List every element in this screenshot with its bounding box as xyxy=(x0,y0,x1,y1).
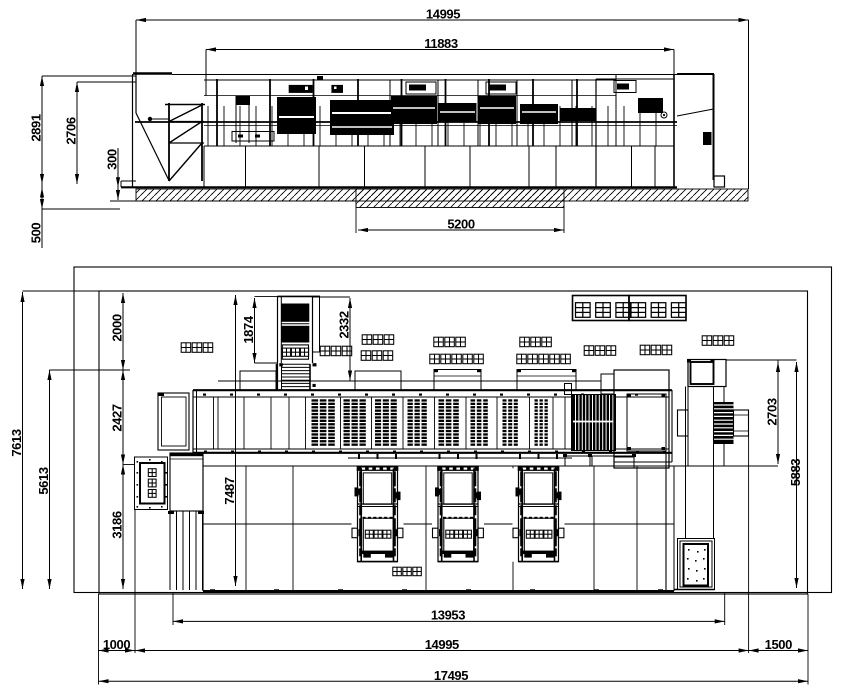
svg-text:3186: 3186 xyxy=(110,511,125,538)
svg-text:2332: 2332 xyxy=(337,311,352,338)
svg-text:14995: 14995 xyxy=(426,7,460,22)
svg-text:1874: 1874 xyxy=(241,315,256,343)
svg-text:1500: 1500 xyxy=(765,637,792,652)
svg-text:5883: 5883 xyxy=(788,459,803,486)
svg-text:11883: 11883 xyxy=(424,36,458,51)
svg-text:5613: 5613 xyxy=(36,467,51,494)
svg-text:5200: 5200 xyxy=(447,217,474,232)
svg-text:7487: 7487 xyxy=(222,477,237,504)
svg-text:2703: 2703 xyxy=(765,398,780,425)
svg-text:2891: 2891 xyxy=(29,114,44,141)
svg-text:500: 500 xyxy=(29,223,44,244)
svg-text:1000: 1000 xyxy=(103,637,130,652)
svg-text:2706: 2706 xyxy=(64,117,79,144)
svg-text:300: 300 xyxy=(105,149,120,170)
svg-text:2427: 2427 xyxy=(110,404,125,431)
svg-text:13953: 13953 xyxy=(431,608,465,623)
svg-text:2000: 2000 xyxy=(110,314,125,341)
svg-text:7613: 7613 xyxy=(9,429,24,456)
svg-text:14995: 14995 xyxy=(425,637,459,652)
svg-text:17495: 17495 xyxy=(434,668,468,683)
